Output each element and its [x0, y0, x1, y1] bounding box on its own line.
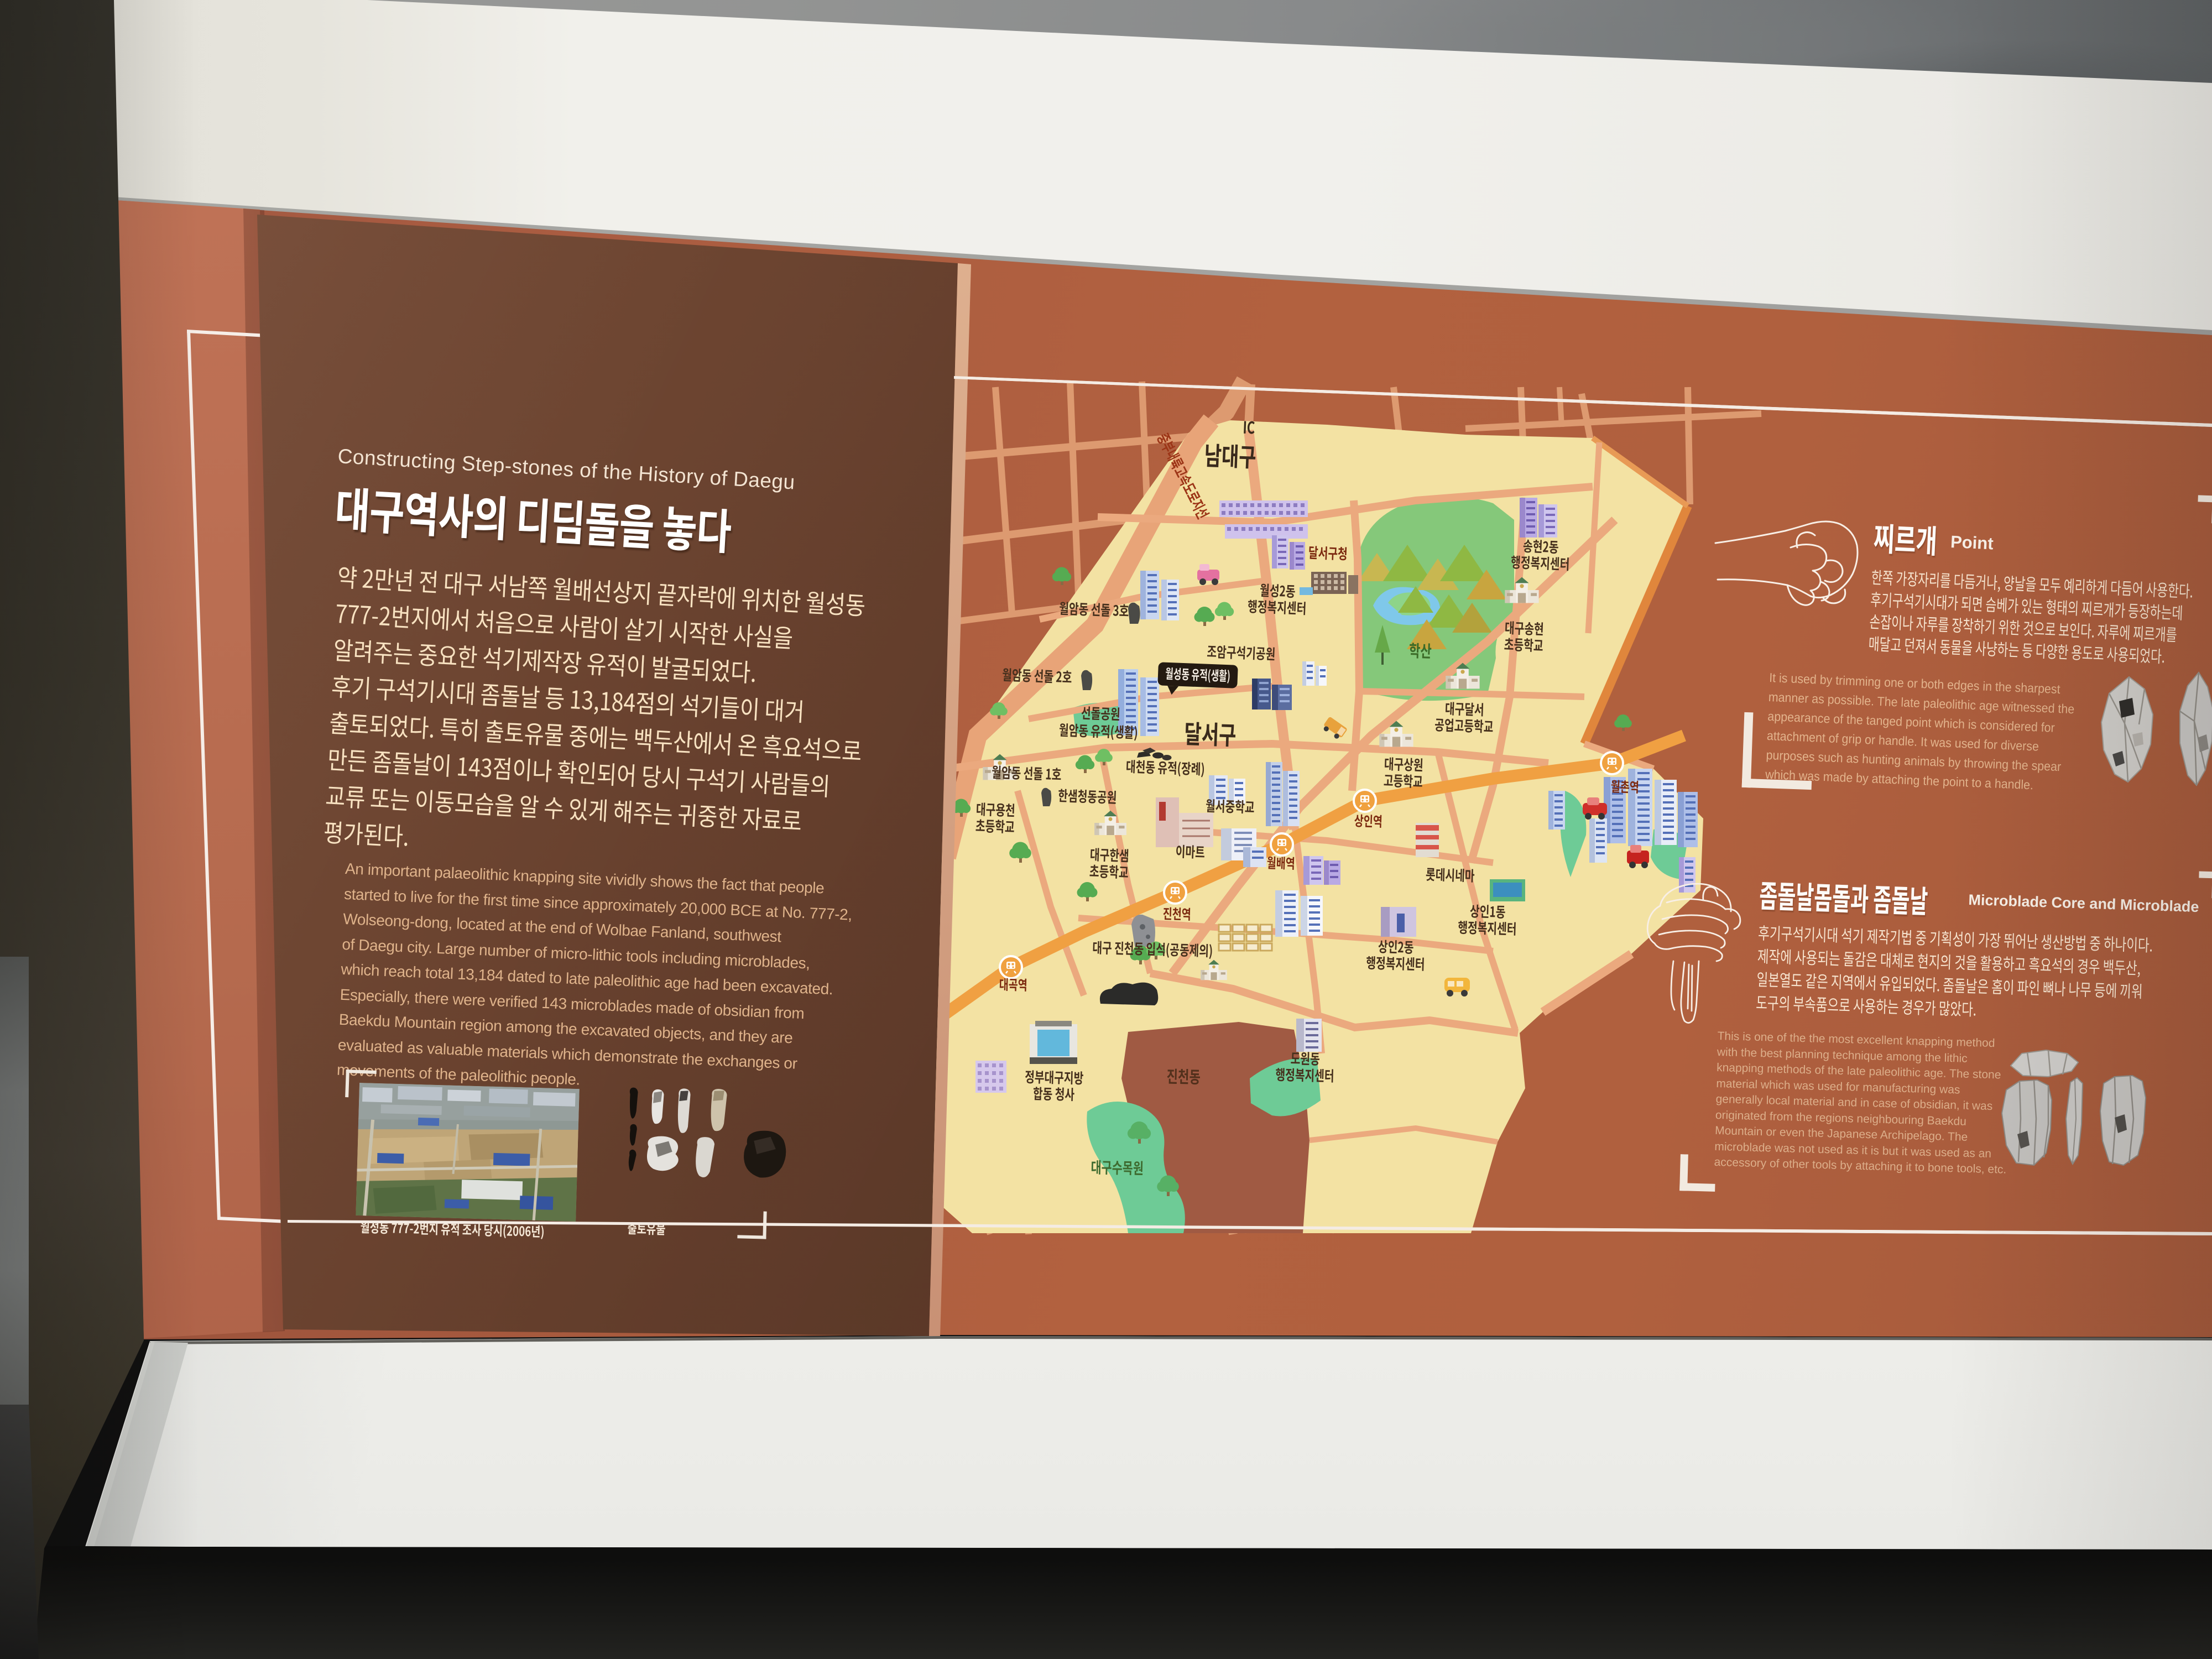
svg-text:행정복지센터: 행정복지센터 [1248, 594, 1307, 618]
svg-text:학산: 학산 [1408, 637, 1432, 662]
svg-text:월성동 유적(생활): 월성동 유적(생활) [1165, 662, 1231, 685]
svg-text:대곡역: 대곡역 [999, 974, 1027, 995]
svg-text:IC: IC [1243, 414, 1256, 439]
svg-text:월암동 선돌 1호: 월암동 선돌 1호 [992, 760, 1062, 784]
svg-text:달서구: 달서구 [1184, 713, 1237, 752]
svg-text:행정복지센터: 행정복지센터 [1366, 951, 1425, 974]
svg-text:초등학교: 초등학교 [1089, 859, 1129, 882]
svg-text:월암동 선돌 2호: 월암동 선돌 2호 [1002, 663, 1073, 687]
svg-text:월암동 선돌 3호: 월암동 선돌 3호 [1059, 597, 1130, 620]
svg-text:대구수목원: 대구수목원 [1091, 1155, 1144, 1179]
svg-text:대구 진천동 입석(공동제의): 대구 진천동 입석(공동제의) [1092, 936, 1213, 961]
svg-text:대천동 유적(장례): 대천동 유적(장례) [1125, 755, 1205, 779]
svg-text:한샘청동공원: 한샘청동공원 [1058, 784, 1117, 807]
svg-text:월촌역: 월촌역 [1610, 776, 1639, 797]
svg-text:월서중학교: 월서중학교 [1206, 794, 1255, 817]
svg-text:월암동 유적(생활): 월암동 유적(생활) [1058, 718, 1138, 743]
svg-text:행정복지센터: 행정복지센터 [1511, 550, 1571, 574]
svg-text:행정복지센터: 행정복지센터 [1458, 916, 1517, 939]
svg-text:초등학교: 초등학교 [1504, 633, 1543, 655]
svg-text:행정복지센터: 행정복지센터 [1275, 1063, 1334, 1086]
svg-text:공업고등학교: 공업고등학교 [1434, 713, 1494, 736]
svg-text:달서구청: 달서구청 [1308, 541, 1348, 564]
svg-text:조암구석기공원: 조암구석기공원 [1207, 640, 1276, 664]
svg-text:초등학교: 초등학교 [975, 814, 1015, 837]
svg-text:남대구: 남대구 [1204, 435, 1257, 474]
svg-text:상인역: 상인역 [1354, 810, 1383, 831]
svg-text:월배역: 월배역 [1266, 852, 1295, 873]
svg-text:고등학교: 고등학교 [1383, 769, 1423, 791]
svg-text:롯데시네마: 롯데시네마 [1426, 863, 1475, 885]
svg-text:진천역: 진천역 [1162, 903, 1191, 924]
svg-text:합동 청사: 합동 청사 [1033, 1082, 1075, 1104]
svg-text:이마트: 이마트 [1175, 839, 1205, 862]
svg-text:진천동: 진천동 [1166, 1063, 1201, 1088]
